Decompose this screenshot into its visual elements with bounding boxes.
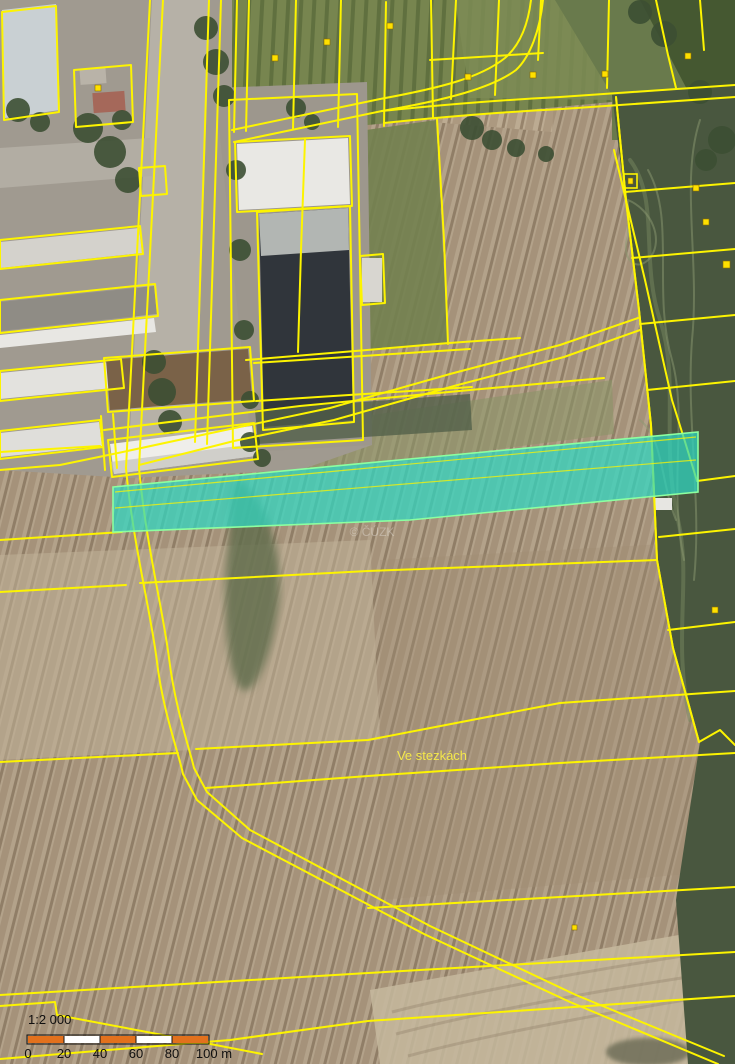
scale-segment	[136, 1036, 172, 1043]
scale-ratio-label: 1:2 000	[28, 1012, 71, 1027]
scale-tick: 100 m	[196, 1046, 232, 1061]
scale-tick: 40	[93, 1046, 107, 1061]
scale-tick: 20	[57, 1046, 71, 1061]
scale-tick: 60	[129, 1046, 143, 1061]
scale-tick: 80	[165, 1046, 179, 1061]
white-building	[237, 138, 350, 210]
map-viewport[interactable]: Ve stezkách © ČÚZK 1:2 000 0 20 40 60 80…	[0, 0, 735, 1064]
watermark: © ČÚZK	[350, 524, 395, 539]
field-name-label: Ve stezkách	[397, 748, 467, 763]
scale-tick: 0	[24, 1046, 31, 1061]
scale-segment	[28, 1036, 64, 1043]
red-roof-house	[92, 91, 125, 113]
scale-segment	[64, 1036, 100, 1043]
small-white-building	[655, 498, 672, 510]
scale-segment	[172, 1036, 208, 1043]
scale-segment	[100, 1036, 136, 1043]
